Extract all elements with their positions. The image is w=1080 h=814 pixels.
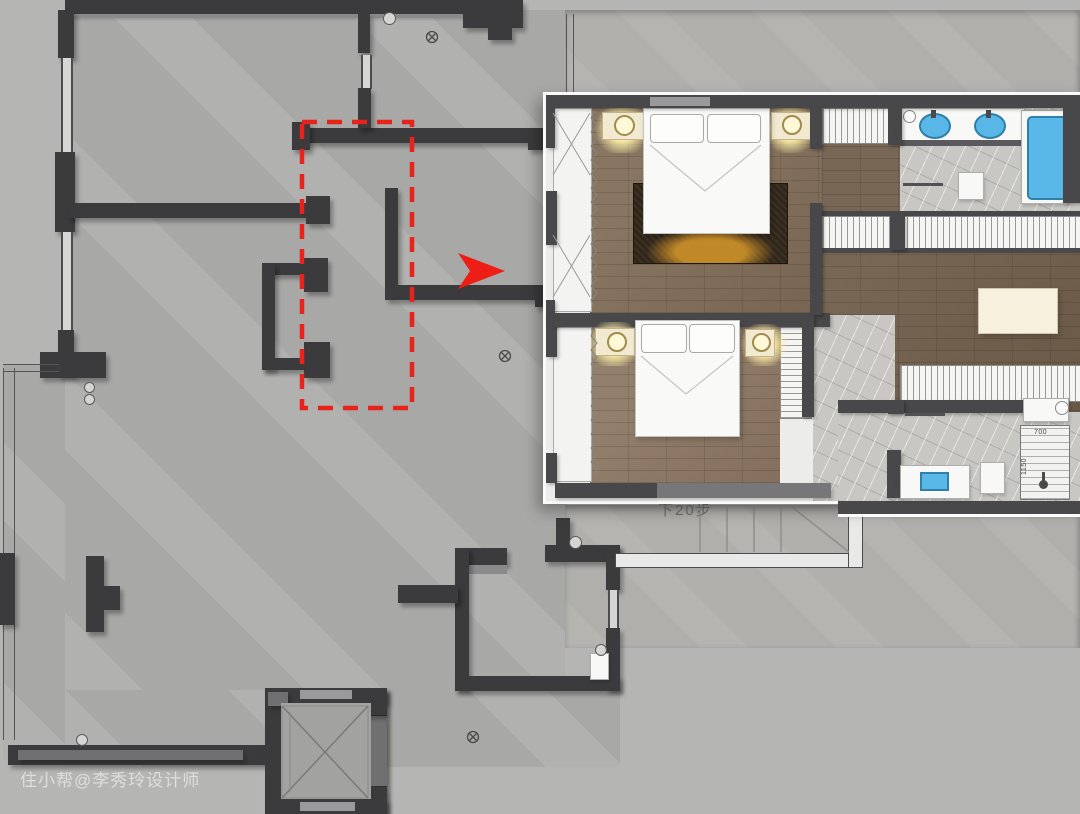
pillow-2 xyxy=(707,114,761,143)
wardrobe-row-1 xyxy=(822,216,1080,250)
mirror-icon xyxy=(903,110,916,123)
vanity-front-edge xyxy=(900,140,1023,146)
window-left-1 xyxy=(61,58,73,152)
wall-bottomleft-pier-1 xyxy=(0,553,15,625)
dimension-700: 700 xyxy=(1034,429,1047,436)
wall-bottomleft-stub xyxy=(104,586,120,610)
wall-L-vertical xyxy=(385,188,398,288)
wall-bottom-face xyxy=(18,750,243,760)
master-right-wall-lower xyxy=(810,203,822,315)
wall-stub-vertical xyxy=(262,263,275,370)
wall-L-horizontal xyxy=(385,285,565,300)
bath2-bottom-wall xyxy=(838,501,1080,514)
wall-top-block xyxy=(463,0,523,28)
inset-pier-2 xyxy=(546,191,557,245)
wall-stub-block-c xyxy=(304,342,330,378)
room-door-leaf xyxy=(590,653,609,680)
lamp-icon-3 xyxy=(607,332,627,352)
shower-drain-icon xyxy=(1039,480,1048,489)
floor-terrace-top xyxy=(565,10,1080,95)
room-window-right xyxy=(608,590,619,628)
dimension-440: 440 xyxy=(893,113,900,141)
bathroom1-right-wall xyxy=(1063,108,1080,203)
inset-bottom-border-ext xyxy=(838,514,1080,517)
lamp-icon-1 xyxy=(614,115,635,136)
wall-corridor-top xyxy=(292,128,566,143)
wall-mid-stub-upper xyxy=(358,13,370,53)
laundry-knob-icon xyxy=(1055,401,1069,415)
wall-corridor-corner xyxy=(292,122,310,150)
wall-bottomleft-pier-2 xyxy=(86,556,104,632)
pipe-symbol-2 xyxy=(84,394,95,405)
toilet-icon-2 xyxy=(980,462,1005,494)
watermark: 住小帮@李秀玲设计师 xyxy=(20,766,200,791)
elevator-door-bottom xyxy=(300,802,355,811)
door-pivot-room-right xyxy=(595,644,607,656)
master-right-wall-upper xyxy=(810,107,822,149)
window-left-2 xyxy=(61,232,73,330)
wardrobe-row-2 xyxy=(900,365,1080,402)
dimension-1150: 1150 xyxy=(1021,445,1028,475)
inset-top-window-slot xyxy=(650,97,710,106)
faucet-icon-2 xyxy=(986,110,991,118)
stairs-handrail xyxy=(615,553,860,568)
bedroom2-bottom-wall xyxy=(555,483,657,498)
pillow-4 xyxy=(689,324,735,353)
sink2-basin-icon xyxy=(920,472,949,491)
floor-plan-screenshot: 下20步 xyxy=(0,0,1080,814)
ottoman xyxy=(978,288,1058,334)
room-wall-topleft-face xyxy=(467,565,507,574)
door-pivot-top xyxy=(383,12,396,25)
room-wall-left xyxy=(455,548,469,690)
toilet-icon-1 xyxy=(958,172,984,200)
wall-stub-block-b xyxy=(304,258,328,292)
wall-interior-endblock xyxy=(306,196,330,224)
bedroom2-bottom-wall-mid xyxy=(657,483,831,498)
bath2-corner-block xyxy=(888,400,904,414)
bath2-top-band xyxy=(838,400,1023,413)
elevator-shaft xyxy=(281,703,371,799)
terrace-rail xyxy=(566,14,574,92)
floor-terrace-bottom xyxy=(565,505,1080,648)
wall-top-stub xyxy=(488,28,512,40)
wardrobe-top xyxy=(822,108,892,144)
faucet-icon-1 xyxy=(931,110,936,118)
bathtub-icon xyxy=(1027,116,1067,200)
wall-top xyxy=(65,0,485,14)
row-divider-block xyxy=(890,214,905,250)
wall-stub-arm-bottom xyxy=(262,358,306,370)
closet-row-edge-bottom xyxy=(822,248,1080,253)
dimension-550: 550 xyxy=(893,466,900,490)
door-pivot-room-top xyxy=(569,536,582,549)
door-pivot-bottomleft xyxy=(76,734,88,746)
wall-mid-stub-lower xyxy=(358,88,371,128)
towel-bar-2 xyxy=(905,413,945,416)
wall-top-face xyxy=(65,14,485,18)
inset-pier-5 xyxy=(546,453,557,483)
pipe-symbol-1 xyxy=(84,382,95,393)
window-mid xyxy=(361,55,372,89)
wall-left-pier-1 xyxy=(58,10,74,58)
towel-bar-1 xyxy=(903,183,943,186)
pillow-3 xyxy=(641,324,687,353)
elevator-wall-right-face xyxy=(371,716,387,786)
inset-pier-1 xyxy=(546,108,555,148)
renovation-plan-inset: 440 550 700 1150 xyxy=(543,92,1080,504)
elevator-wall-left xyxy=(265,688,281,814)
walkway-left-wall xyxy=(802,315,814,417)
elevator-door-top xyxy=(300,690,355,699)
pillow-1 xyxy=(650,114,704,143)
lamp-icon-4 xyxy=(752,333,771,352)
wall-left-pier-2 xyxy=(55,152,75,232)
wall-interior-horizontal xyxy=(68,203,308,218)
room-wall-stub-left xyxy=(398,585,458,603)
window-bay-master xyxy=(553,108,592,312)
lamp-icon-2 xyxy=(782,115,802,135)
